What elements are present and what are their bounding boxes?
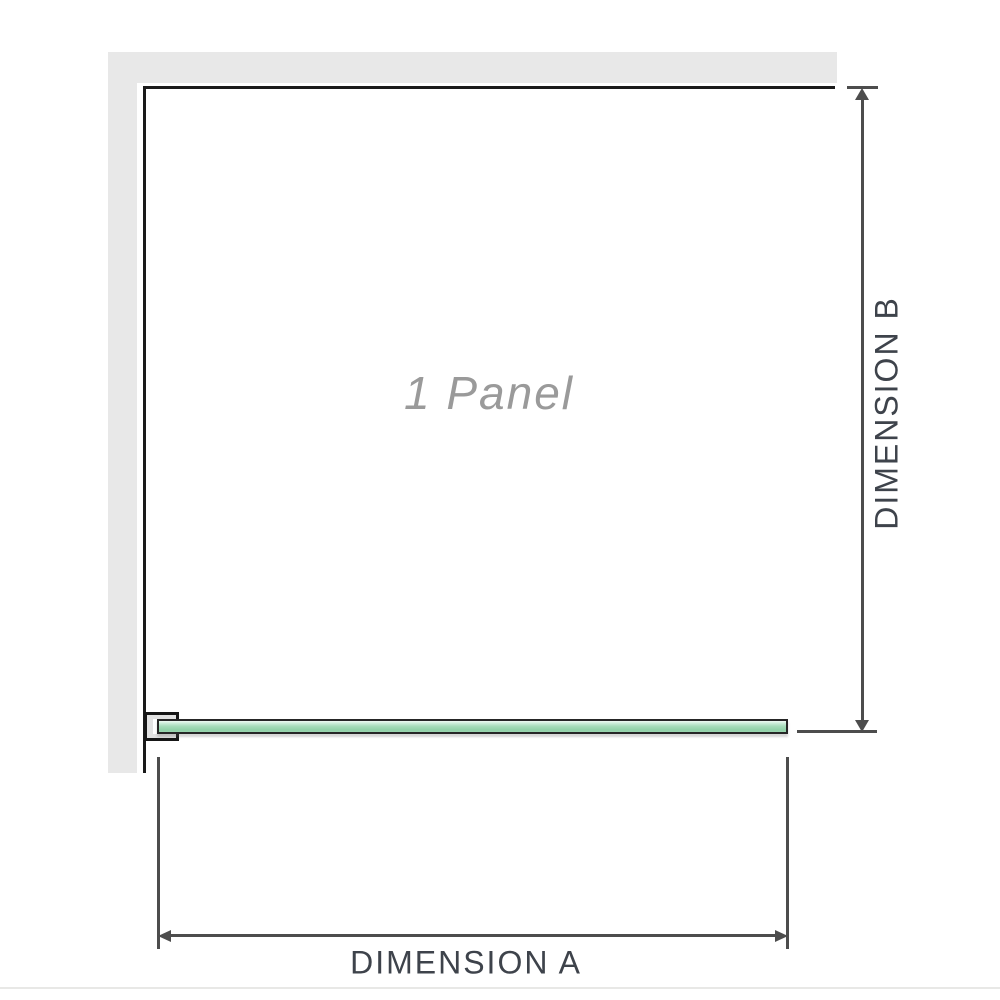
panel-dimension-diagram: 1 Panel DIMENSION B DIMENSION A: [0, 0, 1000, 1000]
dimension-a-arrow-left: [158, 930, 171, 942]
bottom-divider: [0, 987, 1000, 989]
dimension-a-extension-right: [786, 757, 789, 949]
glass-panel: [157, 719, 788, 734]
dimension-b-arrow-up: [855, 88, 869, 100]
dimension-b-line: [861, 97, 864, 725]
dimension-b-arrow-down: [855, 720, 869, 732]
dimension-a-line: [170, 934, 776, 937]
panel-outline-left: [143, 86, 146, 773]
panel-label: 1 Panel: [143, 366, 835, 420]
wall-side: [108, 52, 137, 773]
dimension-b-label: DIMENSION B: [869, 296, 906, 530]
dimension-a-label: DIMENSION A: [350, 945, 582, 982]
wall-top: [108, 52, 837, 83]
panel-outline-top: [143, 86, 835, 89]
dimension-a-extension-left: [157, 757, 160, 949]
dimension-a-arrow-right: [775, 930, 788, 942]
